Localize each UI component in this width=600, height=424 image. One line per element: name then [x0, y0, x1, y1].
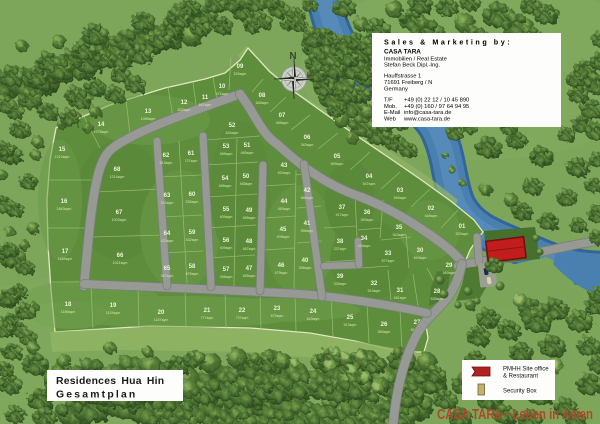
svg-text:09: 09: [237, 64, 244, 70]
svg-text:15: 15: [59, 147, 66, 153]
svg-text:63: 63: [164, 193, 171, 199]
svg-text:577sqm: 577sqm: [382, 259, 395, 263]
svg-text:24: 24: [310, 309, 317, 315]
svg-text:422sqm: 422sqm: [161, 239, 174, 243]
svg-text:53: 53: [223, 144, 230, 150]
svg-text:524sqm: 524sqm: [278, 171, 291, 175]
svg-text:36: 36: [364, 210, 371, 216]
svg-text:11: 11: [202, 95, 209, 101]
svg-text:510sqm: 510sqm: [368, 289, 381, 293]
svg-text:43: 43: [281, 163, 288, 169]
svg-text:680sqm: 680sqm: [301, 196, 314, 200]
svg-text:634sqm: 634sqm: [226, 131, 239, 135]
svg-text:1843sqm: 1843sqm: [57, 207, 72, 211]
svg-text:41: 41: [304, 221, 311, 227]
svg-text:34: 34: [361, 236, 368, 242]
svg-text:16: 16: [61, 199, 68, 205]
svg-text:info@casa-tara.de: info@casa-tara.de: [404, 110, 451, 116]
svg-text:29: 29: [446, 263, 453, 269]
svg-text:1214sqm: 1214sqm: [110, 175, 125, 179]
svg-text:38: 38: [337, 239, 344, 245]
svg-text:526sqm: 526sqm: [234, 72, 247, 76]
svg-text:49: 49: [246, 208, 253, 214]
svg-text:Gesamtplan: Gesamtplan: [56, 390, 137, 401]
svg-text:CASA TARA - Leben in Asien: CASA TARA - Leben in Asien: [437, 406, 593, 423]
svg-text:26: 26: [381, 322, 388, 328]
svg-text:Security Box: Security Box: [503, 389, 537, 395]
svg-text:1187sqm: 1187sqm: [154, 318, 169, 322]
svg-text:556sqm: 556sqm: [301, 229, 314, 233]
svg-text:675sqm: 675sqm: [186, 272, 199, 276]
svg-text:532sqm: 532sqm: [186, 238, 199, 242]
svg-text:52: 52: [229, 123, 236, 129]
svg-text:46: 46: [278, 263, 285, 269]
svg-text:643sqm: 643sqm: [414, 256, 427, 260]
svg-text:32: 32: [371, 281, 378, 287]
svg-text:22: 22: [239, 308, 246, 314]
svg-text:342sqm: 342sqm: [301, 143, 314, 147]
svg-text:23: 23: [274, 306, 281, 312]
svg-text:465sqm: 465sqm: [220, 152, 233, 156]
svg-text:35: 35: [396, 225, 403, 231]
svg-text:1212sqm: 1212sqm: [55, 155, 70, 159]
svg-text:54: 54: [222, 176, 229, 182]
svg-text:18: 18: [65, 302, 72, 308]
svg-text:14: 14: [98, 122, 105, 128]
svg-text:68: 68: [114, 167, 121, 173]
svg-text:20: 20: [158, 310, 165, 316]
svg-text:543sqm: 543sqm: [393, 233, 406, 237]
svg-text:CASA TARA: CASA TARA: [384, 49, 421, 56]
svg-text:398sqm: 398sqm: [220, 275, 233, 279]
svg-text:N: N: [289, 51, 296, 62]
svg-text:326sqm: 326sqm: [334, 282, 347, 286]
svg-text:613sqm: 613sqm: [160, 161, 173, 165]
svg-text:21: 21: [204, 308, 211, 314]
svg-text:10: 10: [219, 84, 226, 90]
svg-text:17: 17: [62, 249, 69, 255]
svg-text:65: 65: [164, 266, 171, 272]
svg-text:50: 50: [243, 174, 250, 180]
svg-text:646sqm: 646sqm: [256, 101, 269, 105]
svg-text:47: 47: [246, 266, 253, 272]
svg-text:727sqm: 727sqm: [185, 159, 198, 163]
svg-text:E-Mail: E-Mail: [384, 110, 400, 116]
svg-text:465sqm: 465sqm: [243, 216, 256, 220]
svg-text:559sqm: 559sqm: [361, 218, 374, 222]
svg-text:71691 Freiberg / N: 71691 Freiberg / N: [384, 80, 432, 86]
svg-text:1003sqm: 1003sqm: [112, 218, 127, 222]
svg-text:61: 61: [188, 151, 195, 157]
svg-text:01: 01: [459, 224, 466, 230]
svg-text:532sqm: 532sqm: [161, 201, 174, 205]
svg-text:31: 31: [397, 288, 404, 294]
svg-text:1156sqm: 1156sqm: [61, 310, 76, 314]
svg-text:45: 45: [280, 227, 287, 233]
svg-text:62: 62: [163, 153, 170, 159]
svg-text:Hauffstrasse 1: Hauffstrasse 1: [384, 73, 421, 79]
svg-text:+49 (0) 160 / 97 64 94 95: +49 (0) 160 / 97 64 94 95: [404, 104, 469, 110]
svg-text:56: 56: [223, 238, 230, 244]
svg-text:12: 12: [181, 100, 188, 106]
svg-text:409sqm: 409sqm: [220, 215, 233, 219]
svg-text:Mob.: Mob.: [384, 104, 397, 110]
svg-text:Residences Hua Hin: Residences Hua Hin: [56, 376, 164, 387]
svg-text:465sqm: 465sqm: [240, 182, 253, 186]
svg-text:Web: Web: [384, 116, 396, 122]
svg-text:1115sqm: 1115sqm: [106, 311, 120, 315]
svg-text:699sqm: 699sqm: [331, 162, 344, 166]
svg-text:450sqm: 450sqm: [278, 207, 291, 211]
svg-text:67: 67: [116, 210, 123, 216]
svg-text:675sqm: 675sqm: [271, 314, 284, 318]
svg-text:66: 66: [117, 253, 124, 259]
svg-text:39: 39: [337, 274, 344, 280]
svg-text:42: 42: [304, 188, 311, 194]
svg-text:04: 04: [366, 174, 373, 180]
svg-text:465sqm: 465sqm: [241, 151, 254, 155]
svg-text:535sqm: 535sqm: [186, 200, 199, 204]
svg-text:Immobilien / Real Estate: Immobilien / Real Estate: [384, 56, 447, 62]
svg-text:1021sqm: 1021sqm: [113, 261, 128, 265]
svg-text:30: 30: [417, 248, 424, 254]
svg-text:19: 19: [110, 303, 117, 309]
svg-text:33: 33: [385, 251, 392, 257]
svg-text:60: 60: [189, 192, 196, 198]
svg-text:1183sqm: 1183sqm: [58, 257, 73, 261]
svg-text:PMHH Site office: PMHH Site office: [503, 367, 549, 373]
svg-text:48: 48: [246, 239, 253, 245]
svg-text:03: 03: [397, 188, 404, 194]
svg-text:05: 05: [334, 154, 341, 160]
svg-text:www.casa-tara.de: www.casa-tara.de: [403, 116, 450, 122]
svg-text:667sqm: 667sqm: [199, 103, 212, 107]
svg-text:532sqm: 532sqm: [456, 232, 469, 236]
svg-text:& Restaurant: & Restaurant: [503, 374, 538, 380]
svg-text:64: 64: [164, 231, 171, 237]
svg-text:06: 06: [304, 135, 311, 141]
svg-text:13: 13: [145, 109, 152, 115]
svg-text:37: 37: [339, 205, 346, 211]
svg-text:465sqm: 465sqm: [243, 274, 256, 278]
svg-text:396sqm: 396sqm: [299, 266, 312, 270]
svg-text:Stefan Beck Dipl.-Ing.: Stefan Beck Dipl.-Ing.: [384, 63, 440, 69]
svg-text:643sqm: 643sqm: [307, 317, 320, 321]
svg-text:+49 (0) 22 12 / 10 45 890: +49 (0) 22 12 / 10 45 890: [404, 97, 469, 103]
svg-text:02: 02: [428, 206, 435, 212]
svg-text:545sqm: 545sqm: [425, 214, 438, 218]
svg-text:237sqm: 237sqm: [334, 247, 347, 251]
svg-text:57: 57: [223, 267, 230, 273]
svg-text:1085sqm: 1085sqm: [141, 117, 156, 121]
svg-text:546sqm: 546sqm: [394, 196, 407, 200]
svg-text:547sqm: 547sqm: [363, 182, 376, 186]
svg-text:777sqm: 777sqm: [201, 316, 214, 320]
svg-text:486sqm: 486sqm: [219, 184, 232, 188]
svg-text:367sqm: 367sqm: [161, 274, 174, 278]
svg-text:1075sqm: 1075sqm: [94, 130, 109, 134]
svg-text:560sqm: 560sqm: [378, 330, 391, 334]
svg-text:409sqm: 409sqm: [277, 235, 290, 239]
svg-text:737sqm: 737sqm: [236, 316, 249, 320]
svg-text:08: 08: [259, 93, 266, 99]
svg-text:07: 07: [279, 113, 286, 119]
svg-text:44: 44: [281, 199, 288, 205]
svg-text:832sqm: 832sqm: [178, 108, 191, 112]
svg-text:25: 25: [347, 315, 354, 321]
svg-text:58: 58: [189, 264, 196, 270]
svg-text:465sqm: 465sqm: [276, 121, 289, 125]
svg-text:409sqm: 409sqm: [220, 246, 233, 250]
svg-text:513sqm: 513sqm: [344, 323, 357, 327]
svg-text:481sqm: 481sqm: [394, 296, 407, 300]
svg-text:T/F: T/F: [384, 97, 393, 103]
svg-text:469sqm: 469sqm: [443, 271, 456, 275]
svg-text:51: 51: [244, 143, 251, 149]
svg-text:Germany: Germany: [384, 87, 408, 93]
svg-text:444sqm: 444sqm: [358, 244, 371, 248]
svg-text:479sqm: 479sqm: [275, 271, 288, 275]
svg-text:Sales & Marketing by:: Sales & Marketing by:: [384, 38, 512, 47]
svg-text:417sqm: 417sqm: [336, 213, 349, 217]
svg-text:471sqm: 471sqm: [216, 92, 229, 96]
svg-text:467sqm: 467sqm: [243, 247, 256, 251]
svg-text:55: 55: [223, 207, 230, 213]
svg-text:59: 59: [189, 230, 196, 236]
svg-text:40: 40: [302, 258, 309, 264]
